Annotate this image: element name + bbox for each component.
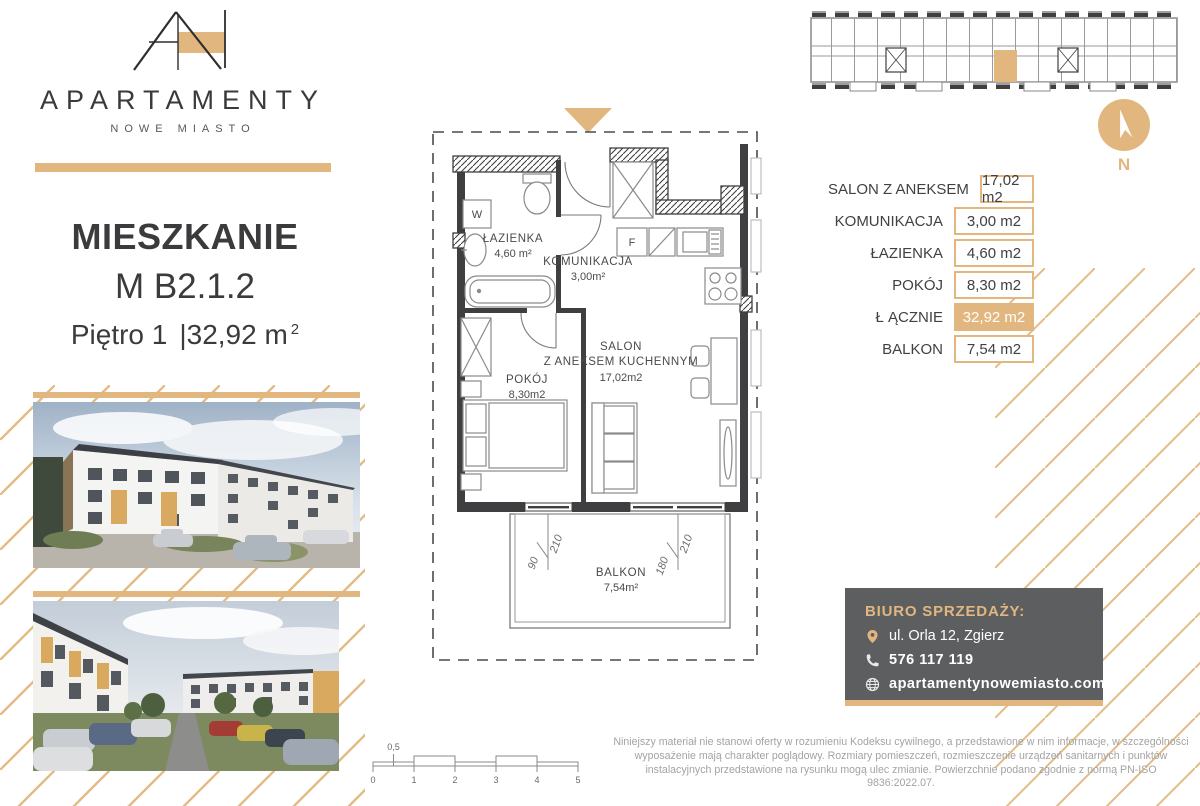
gold-bar-photo2 <box>33 591 360 597</box>
kitchen-fixtures <box>613 162 741 304</box>
label-komunikacja: KOMUNIKACJA <box>543 256 633 268</box>
area-komunikacja: 3,00m² <box>571 271 606 283</box>
total-area: |32,92 m <box>179 319 287 350</box>
listing-header: MIESZKANIE M B2.1.2 Piętro 1|32,92 m2 <box>18 216 352 351</box>
building-photo-2 <box>33 601 339 771</box>
compass: N <box>1094 96 1154 176</box>
brand-name: APARTAMENTY <box>35 85 331 116</box>
row-value: 3,00 m2 <box>954 207 1034 235</box>
globe-icon <box>865 677 880 692</box>
label-lazienka: ŁAZIENKA <box>483 233 543 245</box>
office-website-row: apartamentynowemiasto.com <box>865 676 1093 692</box>
table-row: POKÓJ 8,30 m2 <box>828 271 1034 299</box>
scale-bar: 0,5 0 1 2 3 4 5 <box>363 735 593 791</box>
table-row-total: Ł ĄCZNIE 32,92 m2 <box>828 303 1034 331</box>
label-salon-1: SALON <box>600 341 642 353</box>
office-gold-strip <box>845 700 1103 706</box>
legal-disclaimer: Niniejszy materiał nie stanowi oferty w … <box>612 736 1190 791</box>
building-floor-overview <box>808 6 1180 98</box>
row-label: POKÓJ <box>828 277 954 294</box>
row-label: ŁAZIENKA <box>828 245 954 262</box>
area-lazienka: 4,60 m² <box>494 248 532 260</box>
scale-half-label: 0,5 <box>387 742 400 752</box>
areas-table: SALON Z ANEKSEM 17,02 m2 KOMUNIKACJA 3,0… <box>828 175 1034 367</box>
row-value: 7,54 m2 <box>954 335 1034 363</box>
sales-office-box: BIURO SPRZEDAŻY: ul. Orla 12, Zgierz 576… <box>845 588 1103 706</box>
floor-plan: W F <box>425 100 765 700</box>
office-website: apartamentynowemiasto.com <box>889 676 1105 692</box>
scale-tick-3: 3 <box>493 775 498 785</box>
compass-north-label: N <box>1118 155 1130 174</box>
neighbor-fixtures <box>751 158 761 478</box>
sales-office-title: BIURO SPRZEDAŻY: <box>865 603 1093 620</box>
area-balkon: 7,54m² <box>604 582 639 594</box>
row-value: 17,02 m2 <box>980 175 1034 203</box>
scale-tick-2: 2 <box>452 775 457 785</box>
listing-title: MIESZKANIE <box>18 216 352 258</box>
row-label: Ł ĄCZNIE <box>828 309 954 326</box>
fridge-letter: F <box>629 237 636 249</box>
row-label: SALON Z ANEKSEM <box>828 181 980 198</box>
bedroom-furniture <box>461 318 567 490</box>
office-phone-row: 576 117 119 <box>865 652 1093 668</box>
washer-letter: W <box>472 209 483 221</box>
highlighted-unit <box>994 50 1017 82</box>
brand-subtitle: NOWE MIASTO <box>35 123 331 135</box>
scale-tick-5: 5 <box>575 775 580 785</box>
gold-divider-bar <box>35 163 331 172</box>
office-address: ul. Orla 12, Zgierz <box>889 628 1004 644</box>
row-value: 4,60 m2 <box>954 239 1034 267</box>
label-balkon: BALKON <box>596 567 646 579</box>
scale-tick-1: 1 <box>411 775 416 785</box>
table-row: ŁAZIENKA 4,60 m2 <box>828 239 1034 267</box>
brand-monogram-icon <box>122 8 244 72</box>
brand-logo: APARTAMENTY NOWE MIASTO <box>35 8 331 135</box>
row-value-total: 32,92 m2 <box>954 303 1034 331</box>
row-label: BALKON <box>828 341 954 358</box>
label-pokoj: POKÓJ <box>506 373 548 386</box>
scale-tick-4: 4 <box>534 775 539 785</box>
row-label: KOMUNIKACJA <box>828 213 954 230</box>
phone-icon <box>865 653 880 668</box>
area-pokoj: 8,30m2 <box>509 389 546 401</box>
office-address-row: ul. Orla 12, Zgierz <box>865 628 1093 644</box>
building-photo-1 <box>33 402 360 568</box>
label-salon-2: Z ANEKSEM KUCHENNYM <box>544 356 699 368</box>
floor-and-area: Piętro 1|32,92 m2 <box>18 319 352 351</box>
office-phone: 576 117 119 <box>889 652 974 668</box>
area-superscript: 2 <box>291 321 299 338</box>
area-salon: 17,02m2 <box>600 372 643 384</box>
location-pin-icon <box>865 629 880 644</box>
gold-bar-photo1 <box>33 392 360 398</box>
table-row: BALKON 7,54 m2 <box>828 335 1034 363</box>
unit-number: M B2.1.2 <box>18 267 352 307</box>
scale-tick-0: 0 <box>370 775 375 785</box>
floor-label: Piętro 1 <box>71 319 168 350</box>
overview-top-balconies <box>811 11 1177 17</box>
row-value: 8,30 m2 <box>954 271 1034 299</box>
table-row: KOMUNIKACJA 3,00 m2 <box>828 207 1034 235</box>
table-row: SALON Z ANEKSEM 17,02 m2 <box>828 175 1034 203</box>
